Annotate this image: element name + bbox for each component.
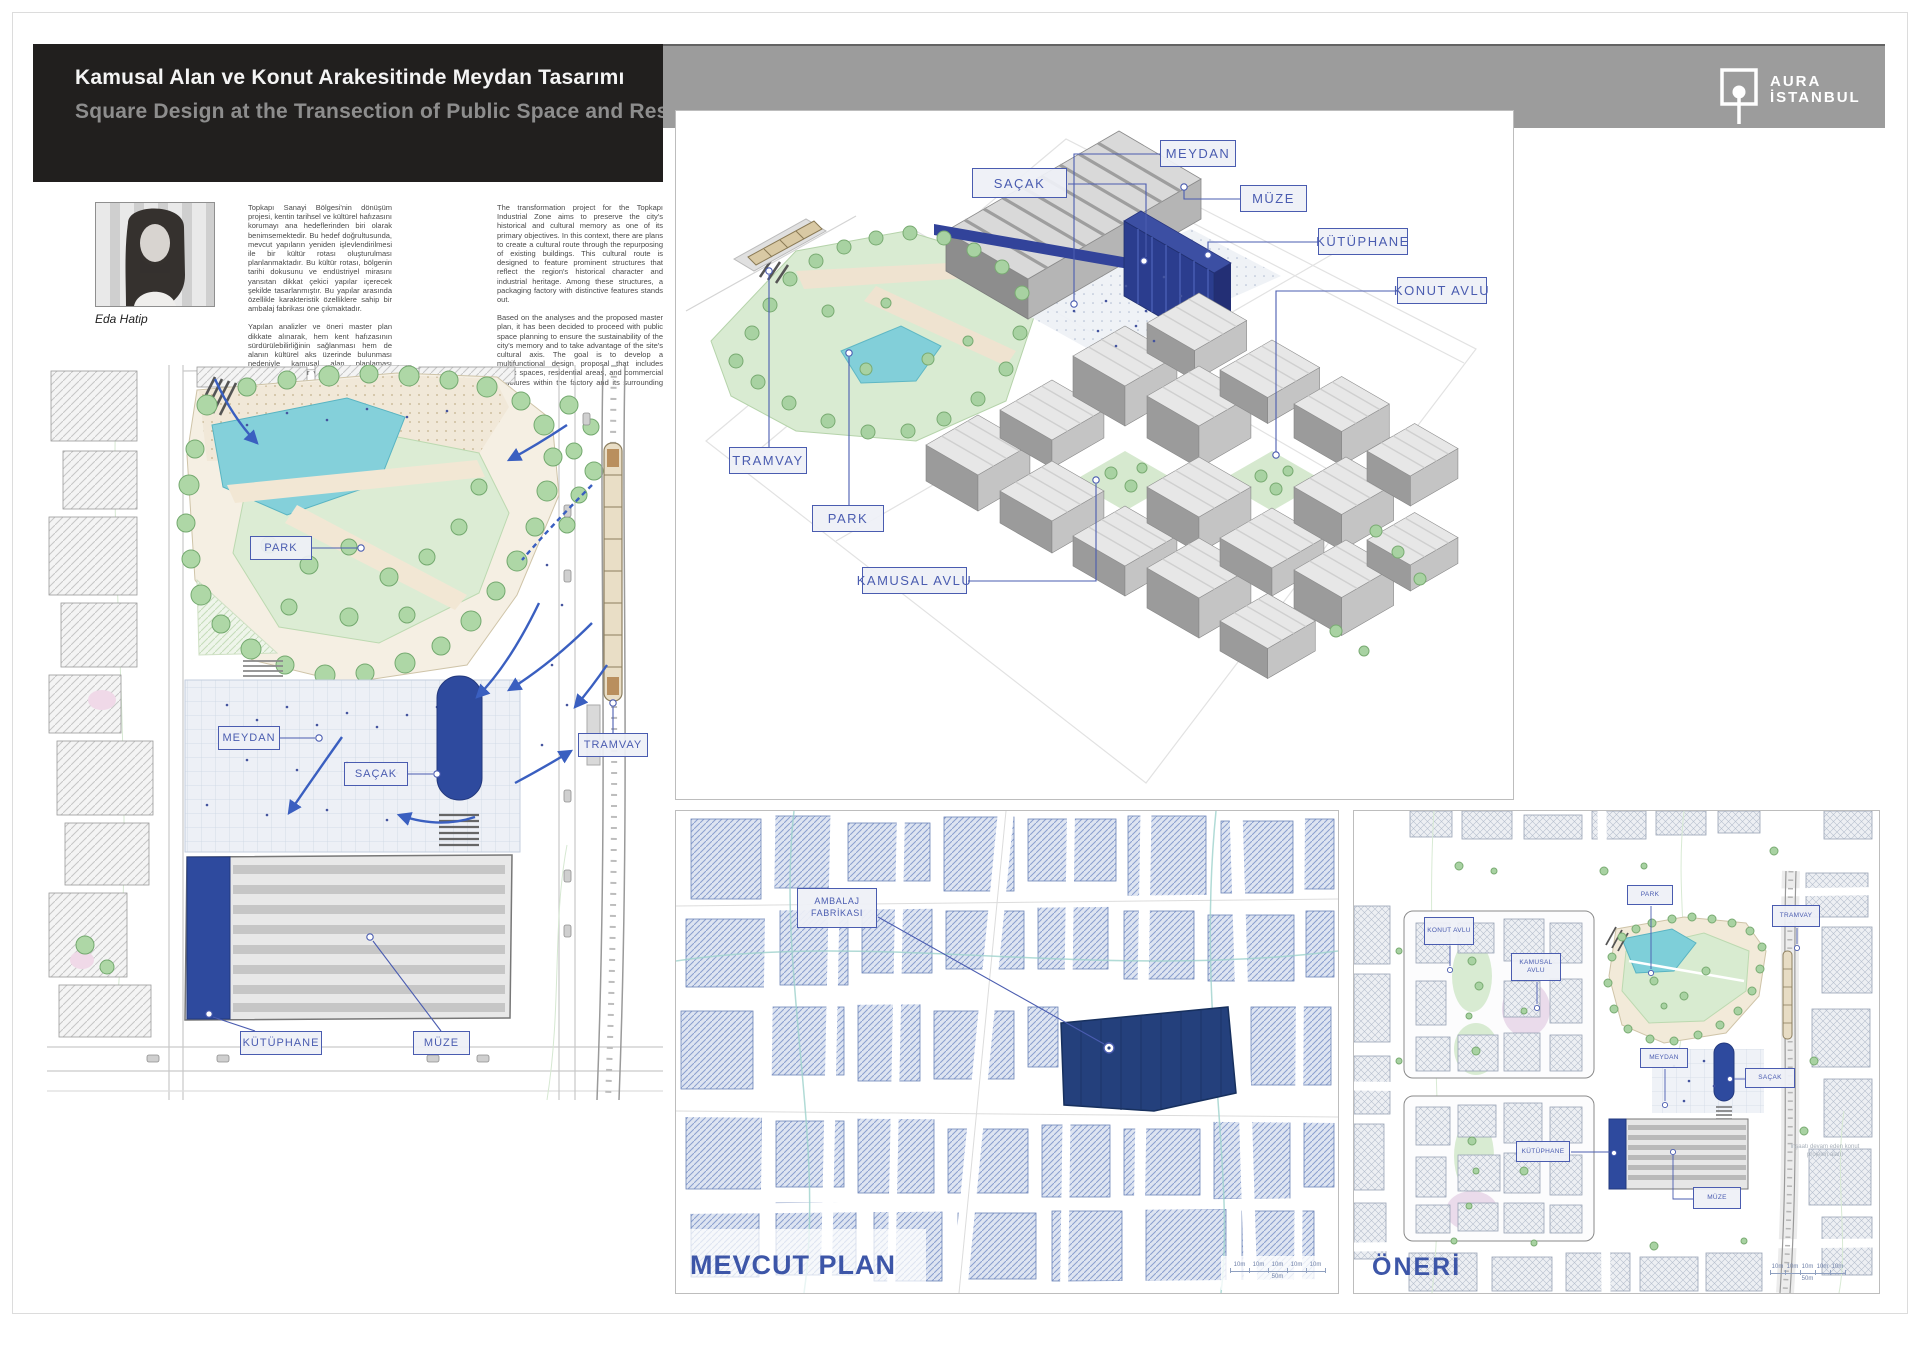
mevcut-plan-drawing — [676, 811, 1338, 1293]
title-turkish: Kamusal Alan ve Konut Arakesitinde Meyda… — [75, 66, 625, 90]
scale-segment-label: 10m — [1268, 1262, 1287, 1268]
oneri-label-kutuphane: KÜTÜPHANE — [1516, 1141, 1570, 1162]
axon-label-muze: MÜZE — [1240, 185, 1307, 212]
plan-label-meydan: MEYDAN — [218, 726, 280, 750]
bio-tr-paragraph-1: Topkapı Sanayi Bölgesi'nin dönüşüm proje… — [248, 203, 392, 313]
superblock-2 — [1404, 1096, 1594, 1241]
park-area-oneri — [1606, 917, 1766, 1043]
scale-segment-label: 10m — [1230, 1262, 1249, 1268]
site-plan-drawing — [47, 365, 663, 1100]
plan-label-kutuphane: KÜTÜPHANE — [240, 1031, 322, 1055]
scale-segment-label: 10m — [1785, 1264, 1800, 1270]
title-english: Square Design at the Transection of Publ… — [75, 100, 744, 124]
poster: Kamusal Alan ve Konut Arakesitinde Meyda… — [0, 0, 1920, 1358]
axon-label-meydan: MEYDAN — [1160, 140, 1236, 167]
mevcut-plan-panel — [675, 810, 1339, 1294]
scale-total-label: 50m — [1770, 1276, 1845, 1282]
logo-text-line2: İSTANBUL — [1770, 90, 1861, 106]
author-portrait — [95, 202, 215, 307]
oneri-label-sacak: SAÇAK — [1745, 1068, 1795, 1088]
oneri-label-muze: MÜZE — [1693, 1187, 1741, 1209]
oneri-scale-bar: 10m10m10m10m10m50m — [1770, 1264, 1845, 1286]
mevcut-plan-title: MEVCUT PLAN — [690, 1250, 896, 1281]
oneri-note: inşaatı devam eden konut projeleri alanı — [1790, 1143, 1860, 1159]
axon-label-park: PARK — [812, 505, 884, 532]
scale-segment-label: 10m — [1249, 1262, 1268, 1268]
scale-segment-label: 10m — [1815, 1264, 1830, 1270]
axon-label-kamusal-avlu: KAMUSAL AVLU — [862, 567, 967, 594]
oneri-label-park: PARK — [1627, 885, 1673, 905]
factory-building — [1061, 1007, 1236, 1111]
oneri-label-tramvay: TRAMVAY — [1772, 905, 1820, 927]
green-patch — [88, 690, 116, 710]
kutuphane-block — [187, 857, 230, 1019]
axon-label-sacak: SAÇAK — [972, 168, 1067, 198]
muze-building — [185, 855, 512, 1020]
mevcut-scale-bar: 10m10m10m10m10m50m — [1230, 1262, 1325, 1284]
plan-label-sacak: SAÇAK — [344, 762, 408, 786]
logo-text-line1: AURA — [1770, 74, 1861, 90]
scale-segment-label: 10m — [1306, 1262, 1325, 1268]
bio-en-paragraph-1: The transformation project for the Topka… — [497, 203, 663, 304]
oneri-plan-title: ÖNERİ — [1372, 1253, 1461, 1282]
axon-label-tramvay: TRAMVAY — [729, 447, 807, 474]
scale-segment-label: 10m — [1287, 1262, 1306, 1268]
plan-label-muze: MÜZE — [413, 1031, 470, 1055]
mevcut-label-ambalaj-fabrikasi: AMBALAJ FABRİKASI — [797, 888, 877, 928]
aura-istanbul-logo: AURA İSTANBUL — [1718, 66, 1861, 126]
aura-logo-icon — [1718, 66, 1760, 126]
plan-label-tramvay: TRAMVAY — [578, 733, 648, 757]
axon-label-konut-avlu: KONUT AVLU — [1397, 277, 1487, 304]
header: Kamusal Alan ve Konut Arakesitinde Meyda… — [33, 44, 663, 182]
oneri-label-konut-avlu: KONUT AVLU — [1424, 917, 1474, 945]
axon-label-kutuphane: KÜTÜPHANE — [1318, 228, 1408, 255]
oneri-label-meydan: MEYDAN — [1640, 1048, 1688, 1068]
scale-total-label: 50m — [1230, 1274, 1325, 1280]
scale-segment-label: 10m — [1770, 1264, 1785, 1270]
oneri-plan-panel — [1353, 810, 1880, 1294]
scale-segment-label: 10m — [1800, 1264, 1815, 1270]
author-name: Eda Hatip — [95, 312, 148, 326]
oneri-plan-drawing — [1354, 811, 1879, 1293]
oneri-label-kamusal-avlu: KAMUSAL AVLU — [1511, 953, 1561, 981]
site-plan — [47, 365, 663, 1100]
plan-label-park: PARK — [250, 536, 312, 560]
muze-building-oneri — [1609, 1119, 1748, 1189]
scale-segment-label: 10m — [1830, 1264, 1845, 1270]
tram-vehicle — [604, 443, 622, 701]
park-area — [187, 373, 559, 683]
